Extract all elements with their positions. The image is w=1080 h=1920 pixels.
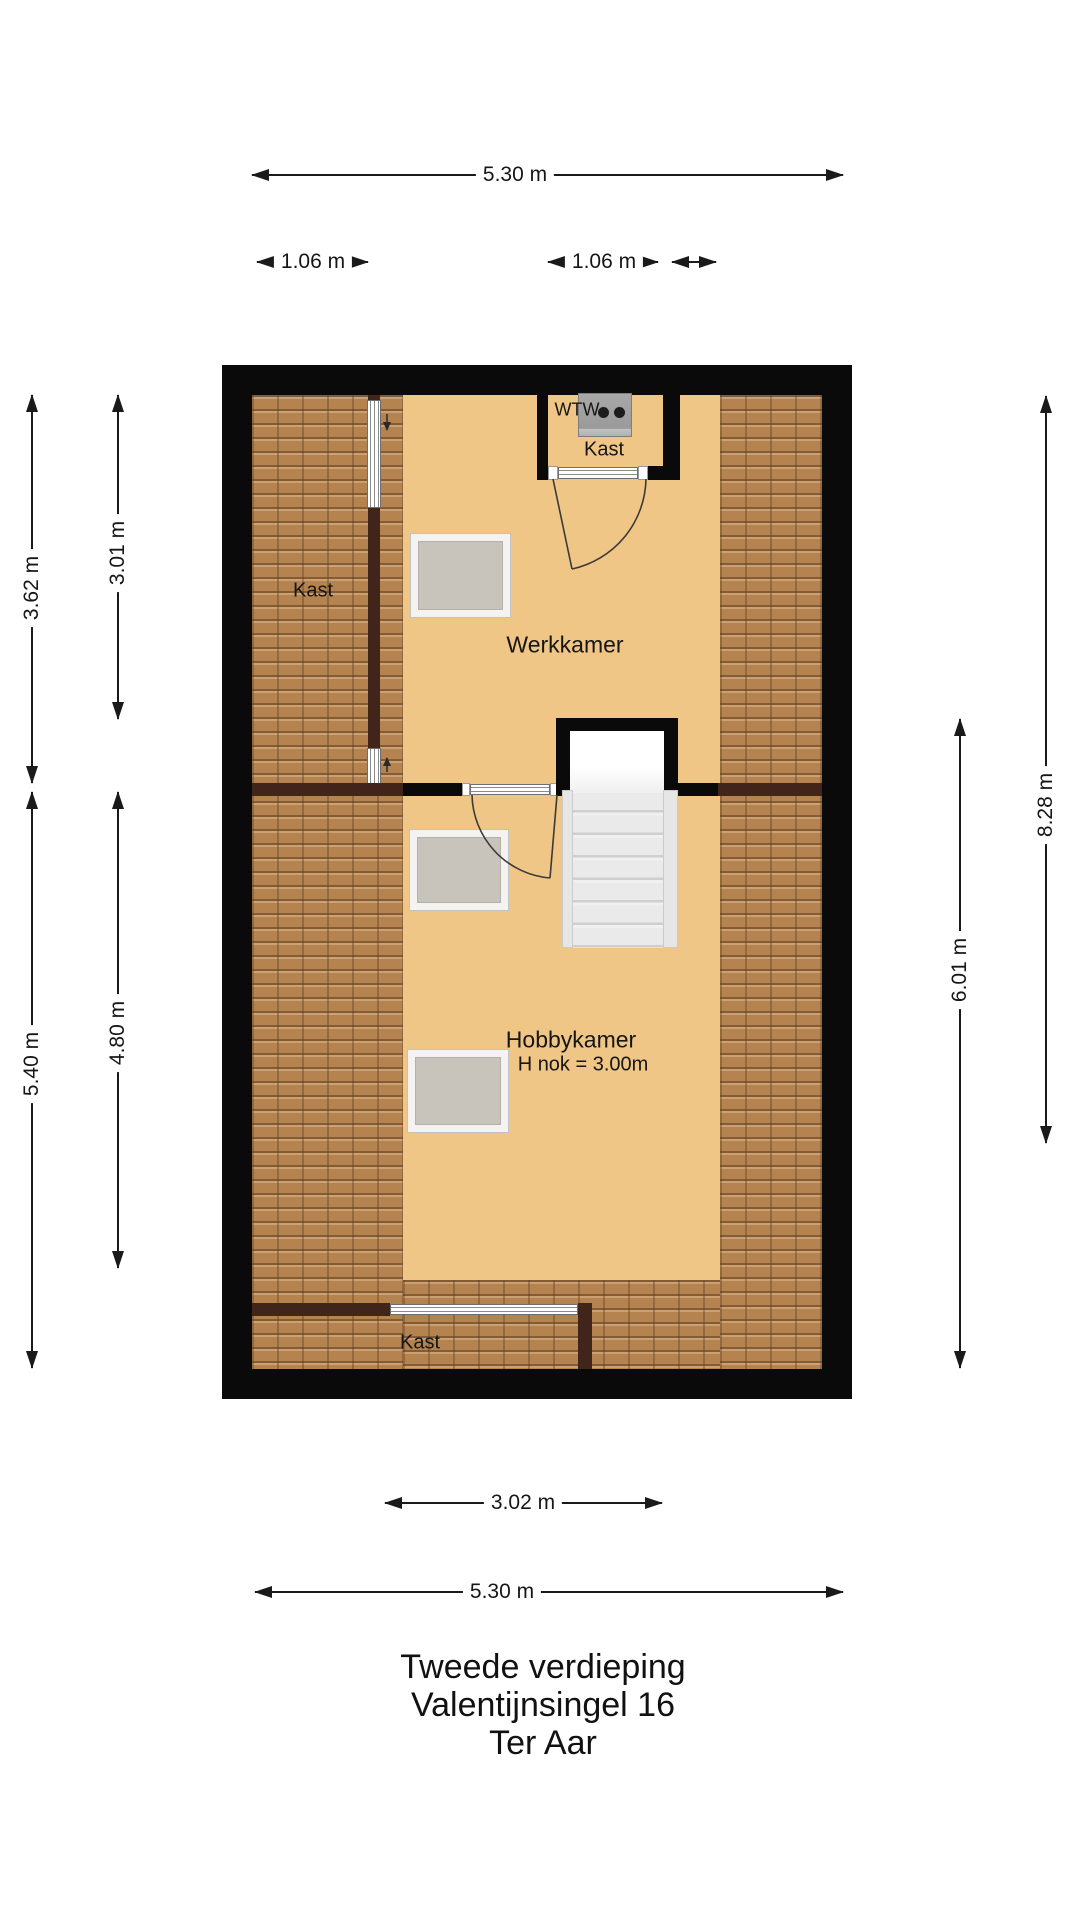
skylight-werkkamer <box>411 534 510 617</box>
divider-door-jamb <box>462 783 470 796</box>
stairs <box>573 790 663 948</box>
wtw-label: WTW <box>555 400 600 421</box>
dim-left-lower-outer-label: 5.40 m <box>19 1025 45 1103</box>
kast-left-label: Kast <box>293 580 333 603</box>
divider-wall-over-tiles-left <box>252 783 403 796</box>
plan-title-line3: Ter Aar <box>400 1724 685 1762</box>
closet-wall-left <box>537 365 548 480</box>
dim-bottom-inner-label: 3.02 m <box>484 1490 562 1516</box>
divider-wall-left <box>403 783 462 796</box>
dim-bottom-width-label: 5.30 m <box>463 1579 541 1605</box>
stair-landing <box>570 731 664 790</box>
dim-left-lower-inner-label: 4.80 m <box>105 994 131 1072</box>
wtw-knob-icon <box>614 407 625 418</box>
closet-wall-stub-right <box>645 466 680 480</box>
dim-right-outer-label: 8.28 m <box>1033 766 1059 844</box>
hobbykamer-sub-label: H nok = 3.00m <box>518 1054 649 1077</box>
closet-door-jamb <box>548 466 558 480</box>
bottom-closet-post <box>578 1303 592 1369</box>
dim-left-upper-inner-label: 3.01 m <box>105 514 131 592</box>
stair-rail-right <box>663 790 678 948</box>
sliding-door-lower <box>367 748 381 784</box>
plan-title-line2: Valentijnsingel 16 <box>400 1686 685 1724</box>
roof-slope-bottom <box>403 1280 720 1369</box>
dim-top-small-left-label: 1.06 m <box>274 249 352 275</box>
closet-door <box>558 467 638 479</box>
roof-slope-left <box>252 395 403 1369</box>
divider-wall-over-tiles-right <box>718 783 822 796</box>
dim-top-width-label: 5.30 m <box>476 162 554 188</box>
closet-wall-right <box>663 365 680 480</box>
dim-left-upper-outer-label: 3.62 m <box>19 549 45 627</box>
stairwell-wall-right <box>664 718 678 796</box>
stair-rail-left <box>562 790 573 948</box>
bottom-closet-wall <box>252 1303 390 1316</box>
skylight-middle <box>410 830 508 910</box>
stairwell-wall-top <box>556 718 678 731</box>
hobbykamer-label: Hobbykamer <box>506 1027 636 1054</box>
sliding-door-upper <box>367 400 381 508</box>
werkkamer-label: Werkkamer <box>506 632 623 659</box>
skylight-hobbykamer <box>408 1050 508 1132</box>
closet-door-jamb <box>638 466 648 480</box>
roof-slope-right <box>720 395 822 1369</box>
kast-top-label: Kast <box>584 439 624 462</box>
wtw-knob-icon <box>598 407 609 418</box>
plan-title-line1: Tweede verdieping <box>400 1648 685 1686</box>
floorplan-page: 5.30 m 1.06 m 1.06 m 3.62 m 3.01 m 5.40 … <box>0 0 1080 1920</box>
dim-top-small-right-label: 1.06 m <box>565 249 643 275</box>
dim-right-inner-label: 6.01 m <box>947 931 973 1009</box>
divider-door <box>470 784 550 795</box>
bottom-closet-sliding-door <box>390 1304 578 1315</box>
kast-bottom-label: Kast <box>400 1332 440 1355</box>
plan-title: Tweede verdieping Valentijnsingel 16 Ter… <box>400 1648 685 1762</box>
divider-wall-right <box>678 783 720 796</box>
stairwell-wall-left <box>556 718 570 796</box>
